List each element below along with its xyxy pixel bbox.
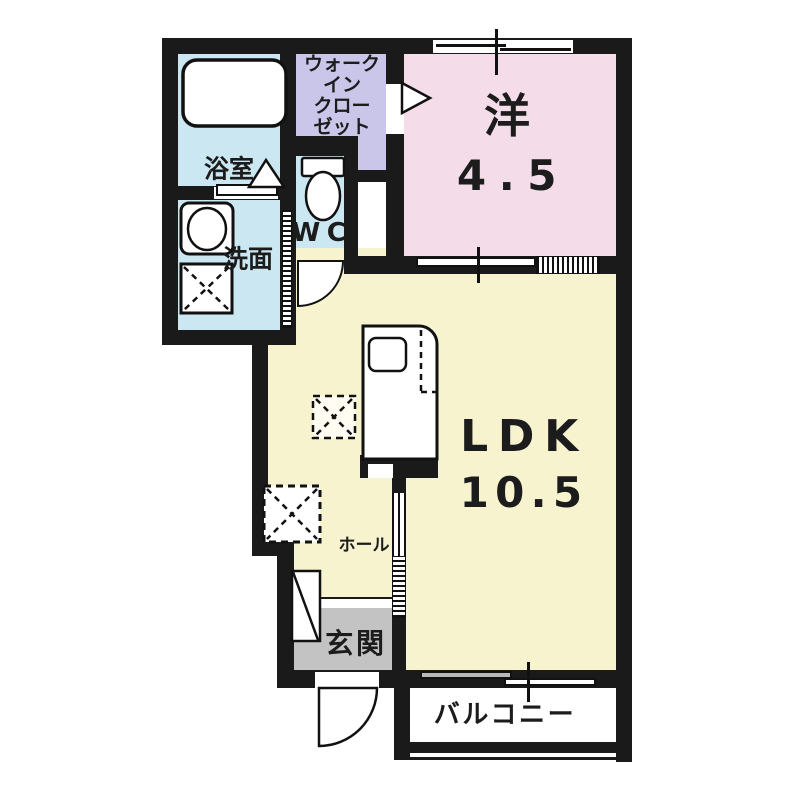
floorplan-canvas: 浴室 ウォーク イン クロー ゼット 洋 4.5 洗面 WC LDK 10.5 … — [0, 0, 800, 800]
refrigerator-space-icon — [313, 396, 355, 438]
label-bathroom: 浴室 — [204, 157, 254, 182]
label-wic-line3: クロー — [296, 96, 388, 117]
label-wic: ウォーク イン クロー ゼット — [296, 54, 388, 138]
fixtures-layer — [0, 0, 800, 800]
toilet-icon — [302, 158, 344, 220]
label-western-size: 4.5 — [457, 155, 569, 197]
label-ldk: LDK — [460, 415, 588, 459]
bath-door-triangle-icon — [249, 160, 284, 187]
label-balcony: バルコニー — [434, 702, 576, 728]
label-washroom: 洗面 — [223, 247, 273, 272]
label-wc: WC — [292, 220, 353, 246]
label-ldk-size: 10.5 — [460, 472, 589, 514]
label-wic-line2: イン — [296, 75, 388, 96]
shoe-cabinet-icon — [292, 571, 320, 641]
kitchen-counter-icon — [363, 326, 437, 459]
label-entrance: 玄関 — [325, 630, 387, 658]
appliance-space-icon — [264, 486, 320, 542]
entrance-door-arc — [319, 688, 377, 746]
wc-door-arc — [298, 261, 343, 306]
label-wic-line4: ゼット — [296, 117, 388, 138]
kitchen-sink-icon — [369, 338, 406, 371]
label-hall: ホール — [339, 538, 390, 555]
label-western: 洋 — [484, 93, 530, 139]
wic-door-arrow-icon — [402, 83, 430, 113]
bathtub-icon — [183, 60, 286, 126]
label-wic-line1: ウォーク — [296, 54, 388, 75]
